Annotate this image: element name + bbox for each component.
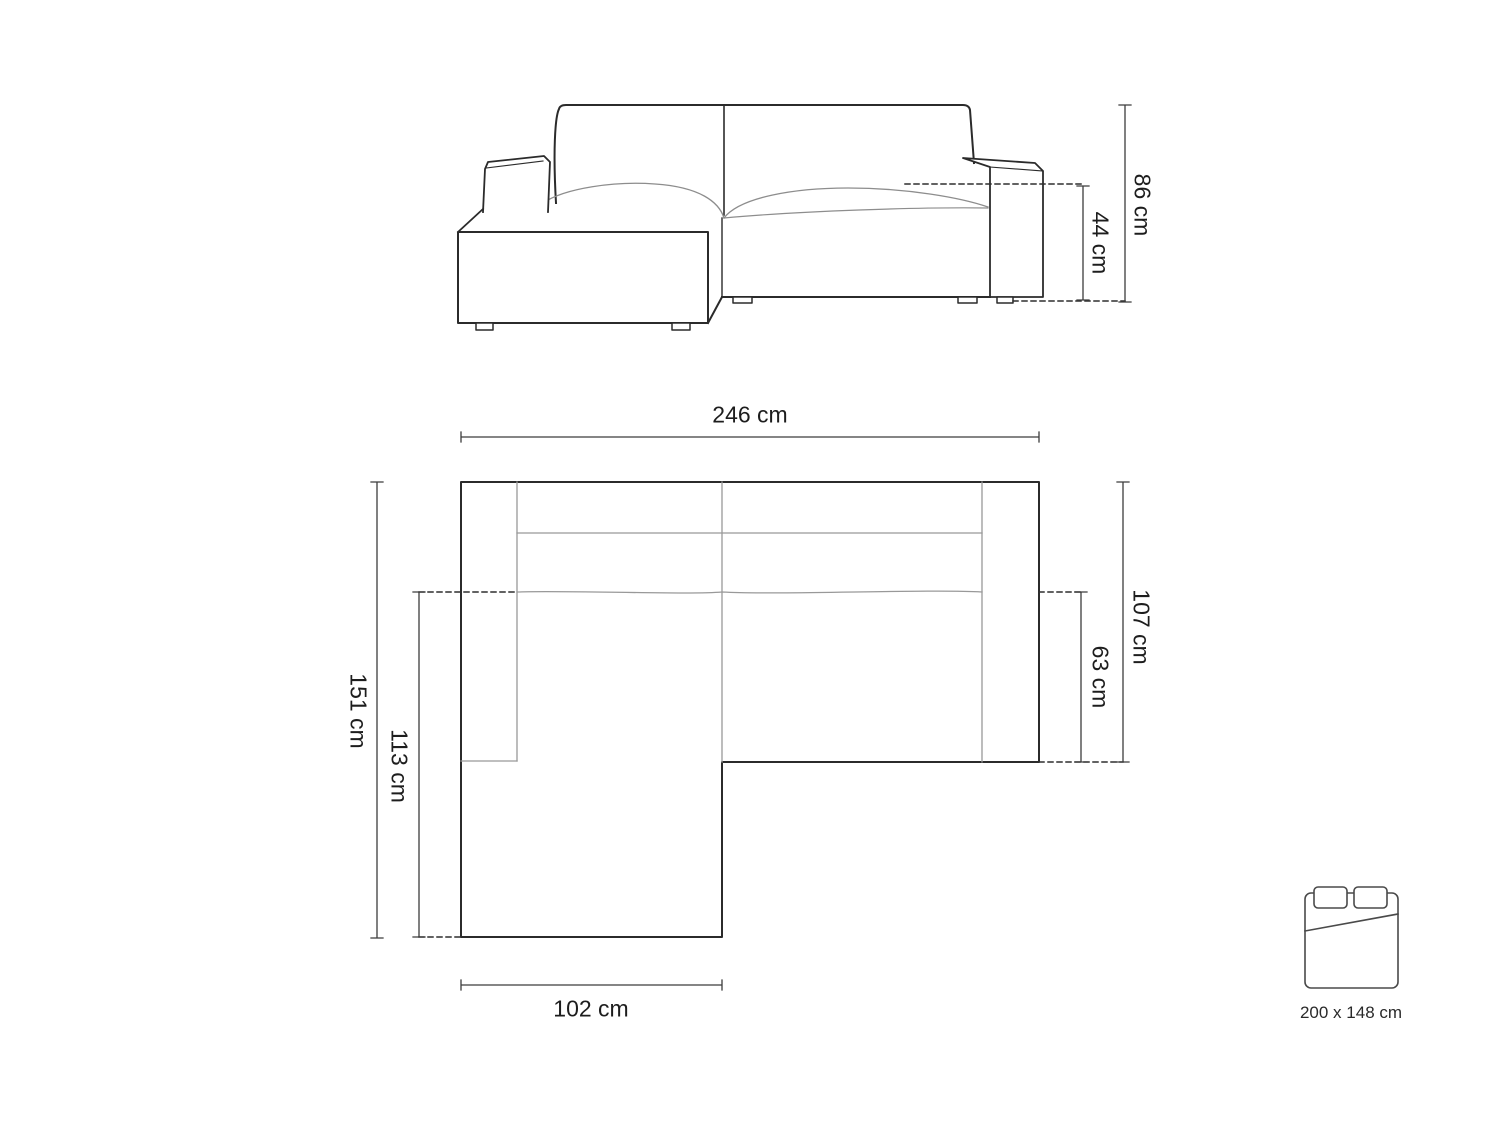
dim-total-height-label: 86 cm xyxy=(1129,174,1156,237)
right-armrest xyxy=(963,158,1043,297)
left-seat-cushion-line xyxy=(543,183,724,218)
seat-deck-line xyxy=(724,208,988,218)
chaise-back-corner-line xyxy=(458,209,483,232)
chaise-body xyxy=(458,232,708,323)
backrest-outline xyxy=(555,105,974,203)
dim-chaise-inner-depth-label: 113 cm xyxy=(386,729,413,803)
sleeping-area-size-label: 200 x 148 cm xyxy=(1300,1003,1402,1023)
right-seat-cushion-line xyxy=(724,188,988,218)
dim-seat-height-label: 44 cm xyxy=(1087,212,1114,275)
dim-chaise-width-label: 102 cm xyxy=(553,996,628,1023)
dim-total-width-label: 246 cm xyxy=(712,402,787,429)
dim-right-section-depth-label: 107 cm xyxy=(1128,589,1155,664)
bed-pillow-right xyxy=(1354,887,1387,908)
dim-total-depth-label: 151 cm xyxy=(345,673,372,748)
front-view xyxy=(458,105,1131,330)
sofa-technical-drawing: 86 cm 44 cm 246 cm 151 cm 113 cm 107 cm … xyxy=(0,0,1500,1125)
drawing-svg xyxy=(0,0,1500,1125)
top-view xyxy=(371,432,1129,990)
bed-icon xyxy=(1305,887,1398,988)
dim-seat-depth-label: 63 cm xyxy=(1087,646,1114,709)
bed-pillow-left xyxy=(1314,887,1347,908)
plan-outline xyxy=(461,482,1039,937)
chaise-right-diagonal xyxy=(708,297,722,323)
